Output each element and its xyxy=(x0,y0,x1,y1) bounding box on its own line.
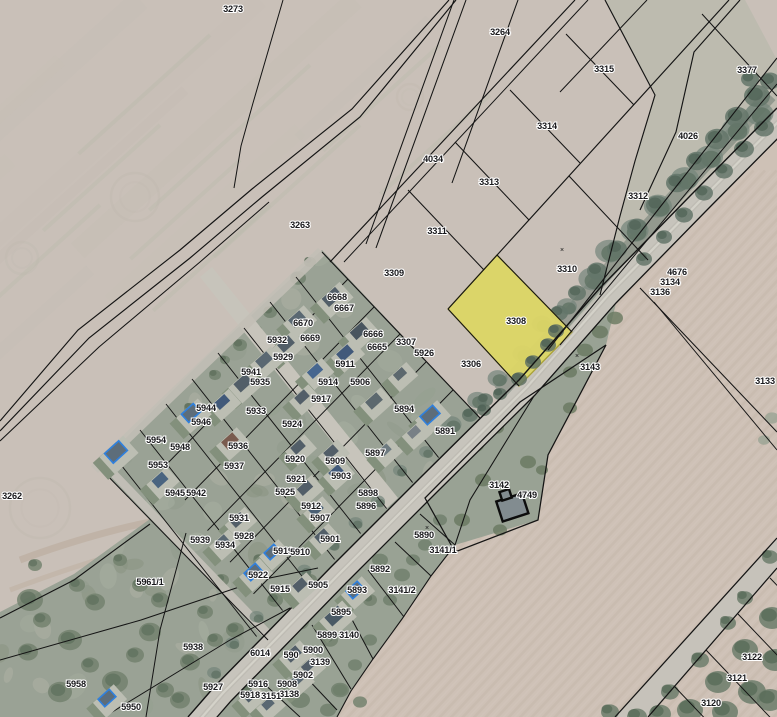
svg-text:5932: 5932 xyxy=(267,335,287,345)
svg-text:5958: 5958 xyxy=(66,679,86,689)
svg-text:5901: 5901 xyxy=(320,534,340,544)
svg-text:5934: 5934 xyxy=(215,540,236,550)
svg-text:6667: 6667 xyxy=(334,303,354,313)
svg-text:3315: 3315 xyxy=(594,64,614,74)
svg-text:6665: 6665 xyxy=(367,342,387,352)
svg-text:3312: 3312 xyxy=(628,191,648,201)
svg-text:3313: 3313 xyxy=(479,177,499,187)
svg-text:5915: 5915 xyxy=(270,584,290,594)
svg-text:5922: 5922 xyxy=(248,570,268,580)
svg-text:5898: 5898 xyxy=(358,488,378,498)
svg-text:5908: 5908 xyxy=(277,679,297,689)
svg-text:3264: 3264 xyxy=(490,27,511,37)
svg-text:3311: 3311 xyxy=(427,226,446,236)
svg-text:5948: 5948 xyxy=(170,442,190,452)
svg-text:3308: 3308 xyxy=(506,316,526,326)
svg-text:6666: 6666 xyxy=(363,329,383,339)
svg-text:5910: 5910 xyxy=(290,547,310,557)
svg-text:3310: 3310 xyxy=(557,264,577,274)
svg-text:5950: 5950 xyxy=(121,702,141,712)
svg-text:5942: 5942 xyxy=(186,488,206,498)
svg-text:5953: 5953 xyxy=(148,460,168,470)
svg-text:5896: 5896 xyxy=(356,501,376,511)
svg-text:5906: 5906 xyxy=(350,377,370,387)
svg-text:3306: 3306 xyxy=(461,359,481,369)
svg-text:5894: 5894 xyxy=(394,404,415,414)
svg-text:5946: 5946 xyxy=(191,417,211,427)
svg-text:5927: 5927 xyxy=(203,682,223,692)
svg-text:5921: 5921 xyxy=(286,474,306,484)
svg-text:6670: 6670 xyxy=(293,318,313,328)
svg-text:3122: 3122 xyxy=(742,652,762,662)
svg-text:5892: 5892 xyxy=(370,564,390,574)
svg-text:5907: 5907 xyxy=(310,513,330,523)
svg-text:3136: 3136 xyxy=(650,287,670,297)
svg-text:5899: 5899 xyxy=(317,630,337,640)
svg-text:3120: 3120 xyxy=(701,698,721,708)
svg-text:3142: 3142 xyxy=(489,480,509,490)
svg-text:5938: 5938 xyxy=(183,642,203,652)
svg-text:3141/1: 3141/1 xyxy=(429,545,456,555)
svg-text:5944: 5944 xyxy=(196,403,217,413)
svg-text:5945: 5945 xyxy=(165,488,185,498)
svg-text:6668: 6668 xyxy=(327,292,347,302)
svg-text:3263: 3263 xyxy=(290,220,310,230)
svg-text:5925: 5925 xyxy=(275,487,295,497)
svg-text:4026: 4026 xyxy=(678,131,698,141)
svg-text:5926: 5926 xyxy=(414,348,434,358)
svg-text:3139: 3139 xyxy=(310,657,330,667)
svg-text:3134: 3134 xyxy=(660,277,681,287)
svg-text:5895: 5895 xyxy=(331,607,351,617)
svg-text:5937: 5937 xyxy=(224,461,244,471)
svg-text:3138: 3138 xyxy=(279,689,299,699)
svg-text:5939: 5939 xyxy=(190,535,210,545)
svg-text:3314: 3314 xyxy=(537,121,558,131)
svg-text:5916: 5916 xyxy=(248,679,268,689)
svg-text:×: × xyxy=(560,247,564,254)
svg-text:×: × xyxy=(425,525,429,532)
svg-text:3307: 3307 xyxy=(396,337,416,347)
svg-text:5912: 5912 xyxy=(301,501,321,511)
svg-text:5941: 5941 xyxy=(241,367,261,377)
svg-text:5929: 5929 xyxy=(273,352,293,362)
svg-text:3133: 3133 xyxy=(755,376,775,386)
svg-text:590: 590 xyxy=(284,650,299,660)
svg-text:3309: 3309 xyxy=(384,268,404,278)
svg-text:5961/1: 5961/1 xyxy=(136,577,163,587)
svg-text:6669: 6669 xyxy=(300,333,320,343)
svg-text:5936: 5936 xyxy=(228,441,248,451)
svg-text:5935: 5935 xyxy=(250,377,270,387)
svg-text:5897: 5897 xyxy=(365,448,385,458)
svg-text:5931: 5931 xyxy=(229,513,249,523)
svg-text:3151: 3151 xyxy=(261,691,281,701)
svg-text:3377: 3377 xyxy=(737,65,757,75)
svg-text:5909: 5909 xyxy=(325,456,345,466)
svg-text:3140: 3140 xyxy=(339,630,359,640)
svg-text:5954: 5954 xyxy=(146,435,167,445)
svg-text:5900: 5900 xyxy=(303,645,323,655)
svg-text:5903: 5903 xyxy=(331,471,351,481)
svg-text:3143: 3143 xyxy=(580,362,600,372)
svg-text:3273: 3273 xyxy=(223,4,243,14)
svg-text:3121: 3121 xyxy=(727,673,747,683)
svg-text:4034: 4034 xyxy=(423,154,444,164)
svg-text:5914: 5914 xyxy=(318,377,339,387)
svg-text:5905: 5905 xyxy=(308,580,328,590)
svg-text:×: × xyxy=(575,353,579,360)
svg-text:5918: 5918 xyxy=(240,690,260,700)
svg-text:5891: 5891 xyxy=(435,426,455,436)
svg-text:5928: 5928 xyxy=(234,531,254,541)
svg-text:3262: 3262 xyxy=(2,491,22,501)
svg-text:4676: 4676 xyxy=(667,267,687,277)
svg-text:5917: 5917 xyxy=(311,394,331,404)
svg-text:5933: 5933 xyxy=(246,406,266,416)
svg-text:3141/2: 3141/2 xyxy=(388,585,415,595)
svg-text:4749: 4749 xyxy=(517,490,537,500)
svg-text:5924: 5924 xyxy=(282,419,303,429)
svg-text:5911: 5911 xyxy=(335,359,354,369)
svg-text:6014: 6014 xyxy=(250,648,271,658)
svg-text:5893: 5893 xyxy=(347,585,367,595)
svg-text:5920: 5920 xyxy=(285,454,305,464)
